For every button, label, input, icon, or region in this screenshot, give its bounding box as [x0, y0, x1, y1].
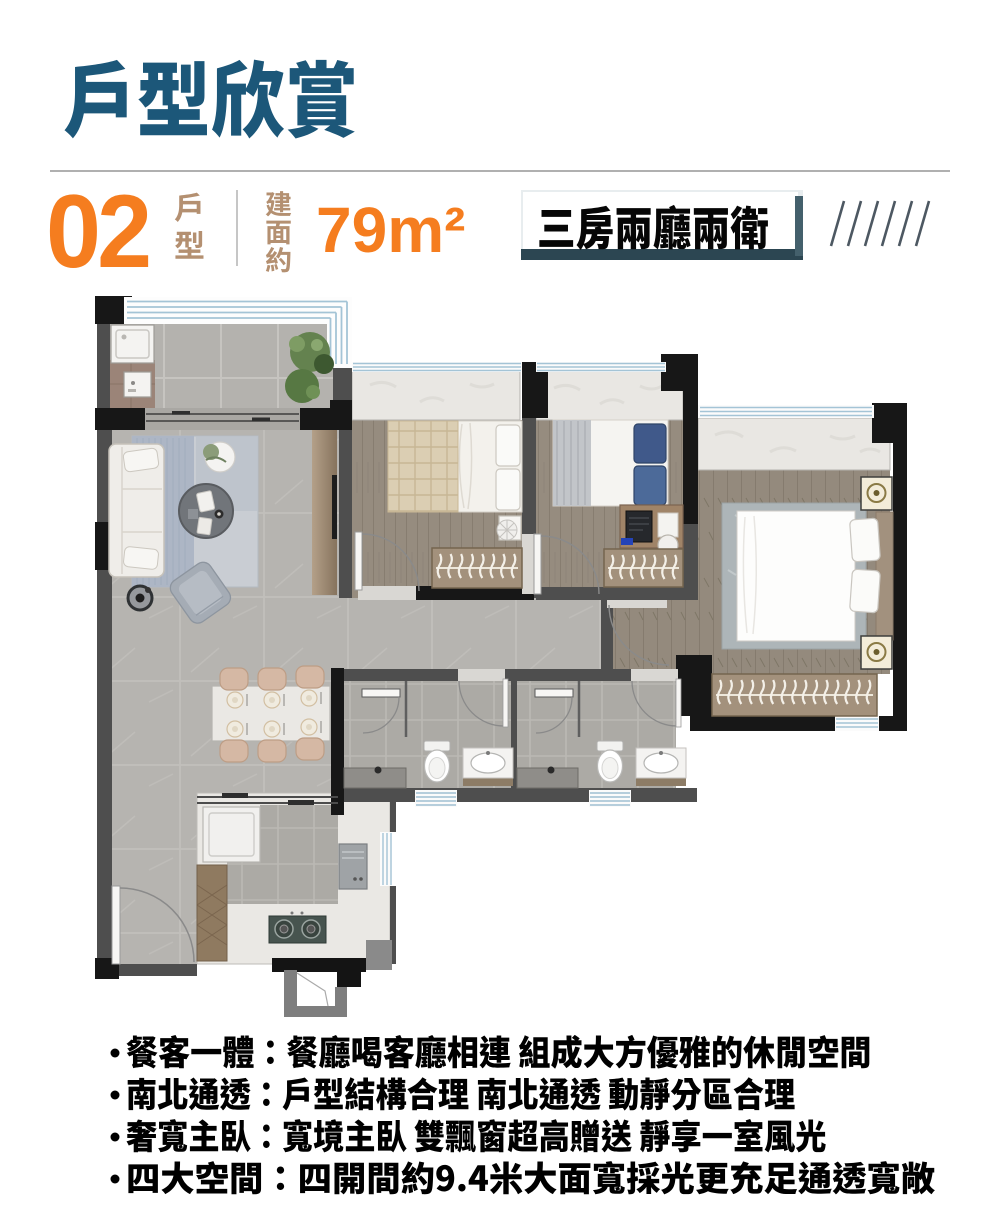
svg-text:02: 02 [46, 174, 149, 290]
svg-text:79m²: 79m² [316, 194, 465, 266]
